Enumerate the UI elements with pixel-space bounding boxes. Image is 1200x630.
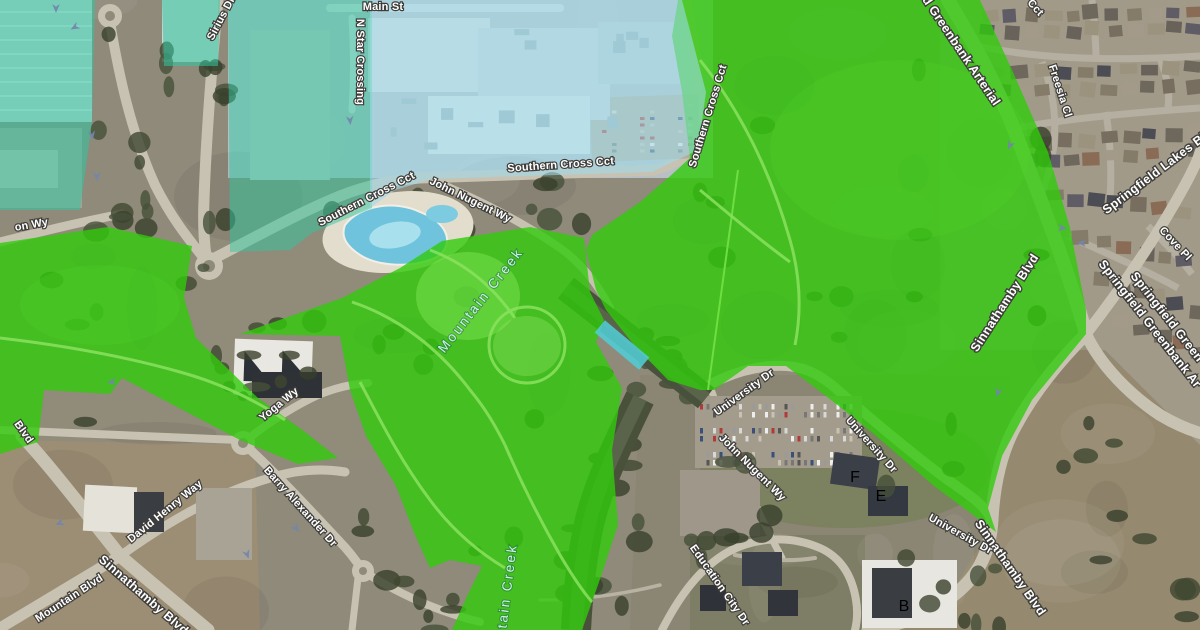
building-label-e: E (876, 488, 887, 505)
satellite-map-view[interactable]: Main StN Star CrossingSirius Dron WySout… (0, 0, 1200, 630)
road-label-n-star-crossing: N Star Crossing (354, 19, 366, 105)
building-label-b: B (899, 598, 910, 615)
overlay-warehouse-teal[interactable] (0, 0, 95, 210)
road-label-main-st: Main St (363, 1, 404, 13)
building-label-f: F (850, 469, 860, 486)
map-canvas[interactable]: Main StN Star CrossingSirius Dron WySout… (0, 0, 1200, 630)
